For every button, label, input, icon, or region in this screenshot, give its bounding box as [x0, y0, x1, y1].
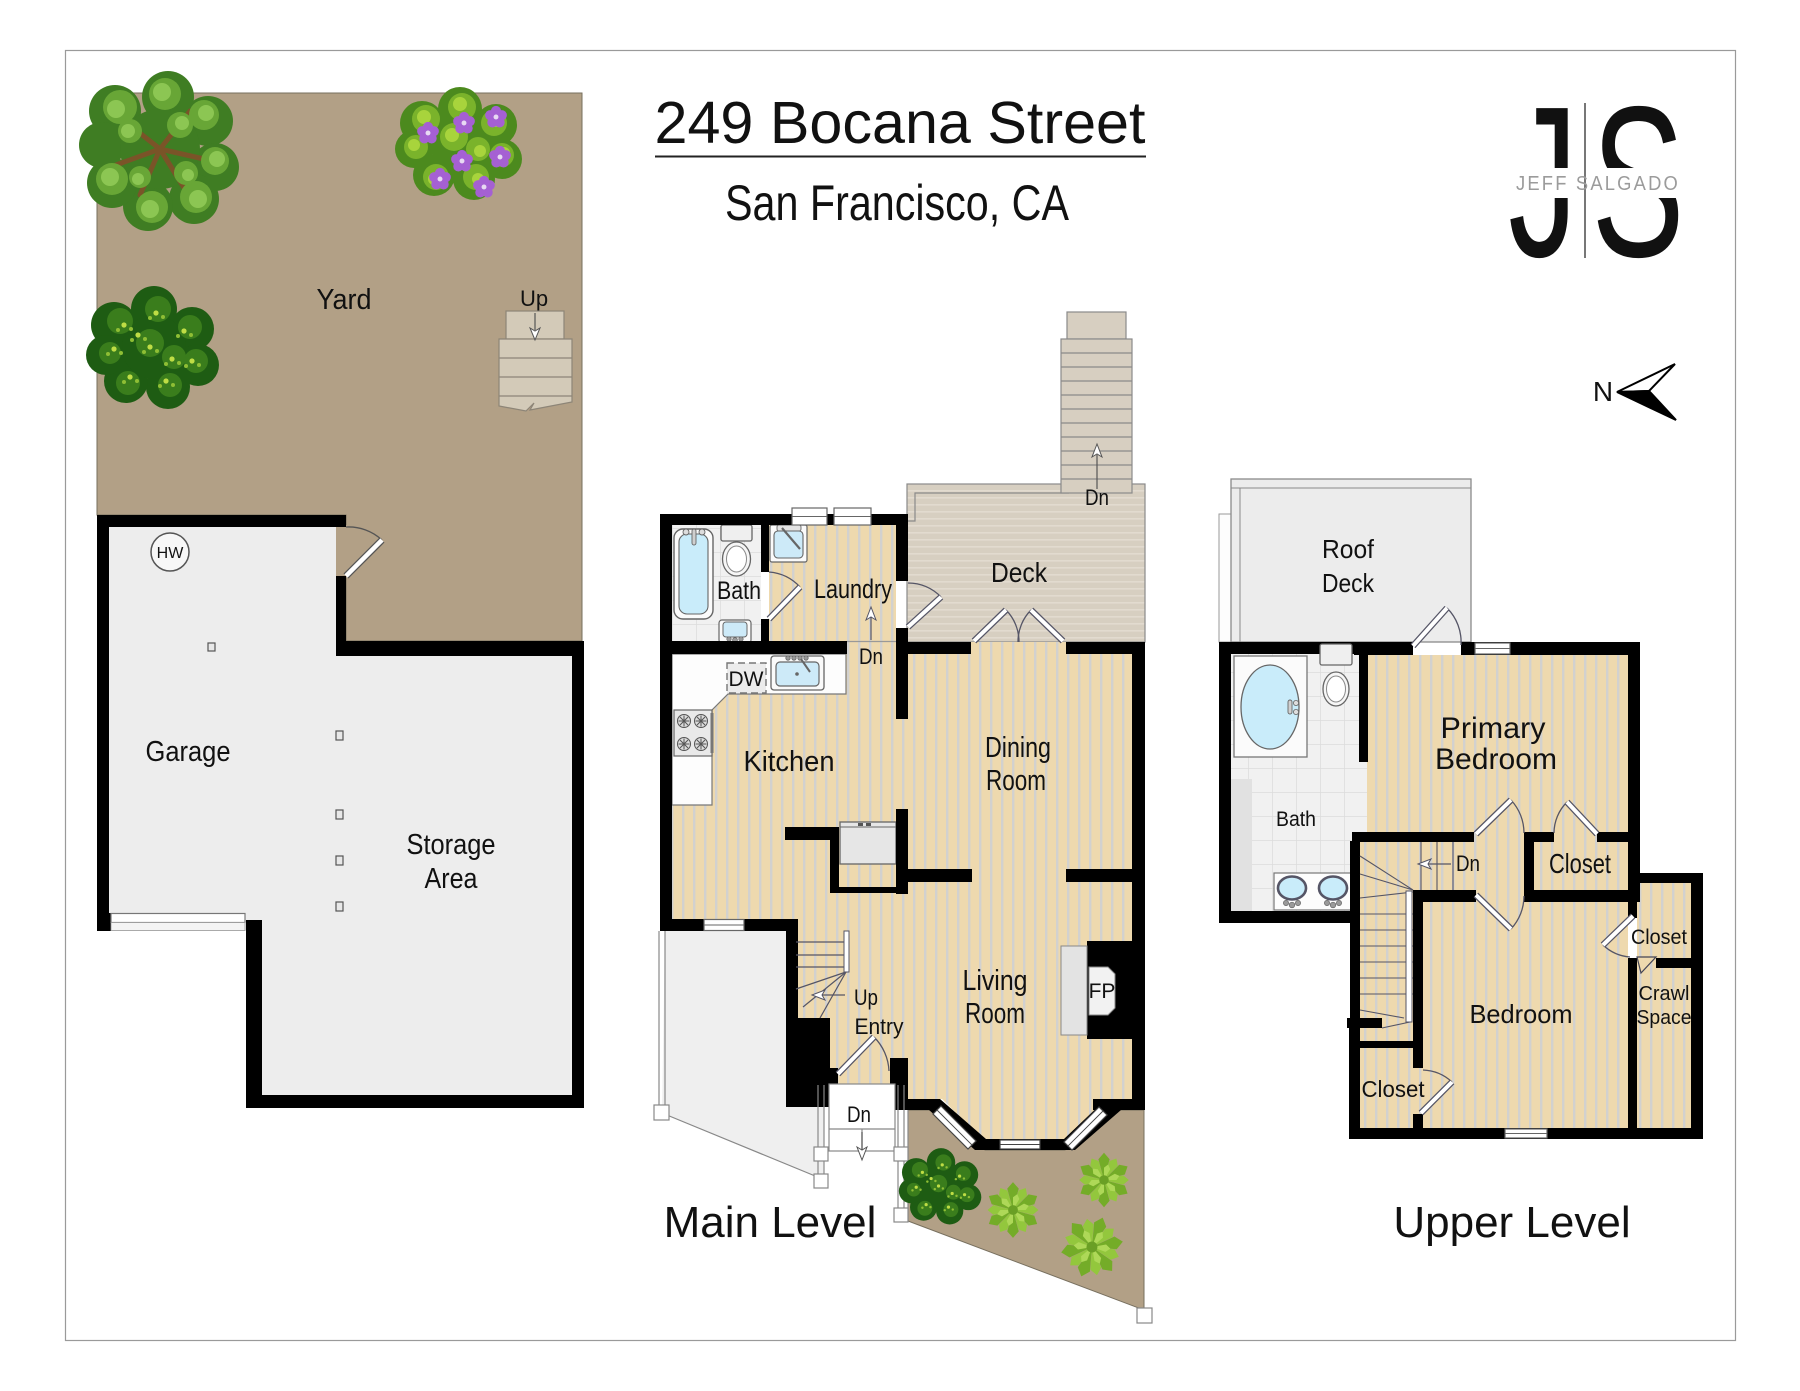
svg-text:Storage: Storage — [407, 829, 496, 861]
svg-text:Room: Room — [965, 998, 1025, 1030]
svg-text:Area: Area — [425, 863, 479, 895]
svg-text:Living: Living — [963, 965, 1028, 997]
svg-text:Up: Up — [520, 286, 548, 311]
svg-text:Dining: Dining — [985, 732, 1051, 764]
svg-text:Dn: Dn — [1456, 851, 1480, 876]
svg-text:N: N — [1593, 376, 1613, 407]
svg-text:Roof: Roof — [1322, 534, 1375, 564]
svg-text:Primary: Primary — [1441, 712, 1546, 745]
svg-text:Dn: Dn — [1085, 485, 1109, 510]
svg-text:Upper Level: Upper Level — [1393, 1198, 1630, 1247]
svg-text:Dn: Dn — [847, 1102, 871, 1127]
svg-text:Garage: Garage — [146, 736, 231, 768]
svg-text:Crawl: Crawl — [1639, 983, 1690, 1005]
svg-text:Up: Up — [854, 985, 878, 1010]
svg-text:Closet: Closet — [1362, 1076, 1426, 1102]
svg-text:San Francisco, CA: San Francisco, CA — [725, 175, 1070, 231]
svg-text:Bedroom: Bedroom — [1470, 999, 1573, 1029]
svg-text:Bath: Bath — [717, 577, 761, 605]
svg-text:Main Level: Main Level — [664, 1198, 877, 1247]
svg-text:Room: Room — [986, 765, 1046, 797]
svg-text:Entry: Entry — [855, 1014, 904, 1039]
svg-text:Bedroom: Bedroom — [1435, 743, 1557, 776]
svg-text:Closet: Closet — [1549, 848, 1611, 879]
svg-text:Closet: Closet — [1631, 926, 1687, 949]
svg-text:Dn: Dn — [859, 644, 883, 669]
svg-text:249 Bocana Street: 249 Bocana Street — [655, 90, 1146, 156]
svg-text:Bath: Bath — [1276, 808, 1316, 831]
svg-text:DW: DW — [729, 668, 764, 691]
svg-text:Yard: Yard — [317, 284, 372, 316]
svg-text:Kitchen: Kitchen — [744, 746, 835, 778]
svg-text:Space: Space — [1637, 1007, 1692, 1029]
svg-text:HW: HW — [157, 545, 185, 562]
svg-text:Laundry: Laundry — [814, 574, 892, 604]
svg-text:Deck: Deck — [1322, 568, 1375, 598]
svg-text:Deck: Deck — [991, 557, 1048, 588]
svg-text:JEFF SALGADO: JEFF SALGADO — [1516, 173, 1680, 195]
svg-text:FP: FP — [1089, 980, 1116, 1003]
